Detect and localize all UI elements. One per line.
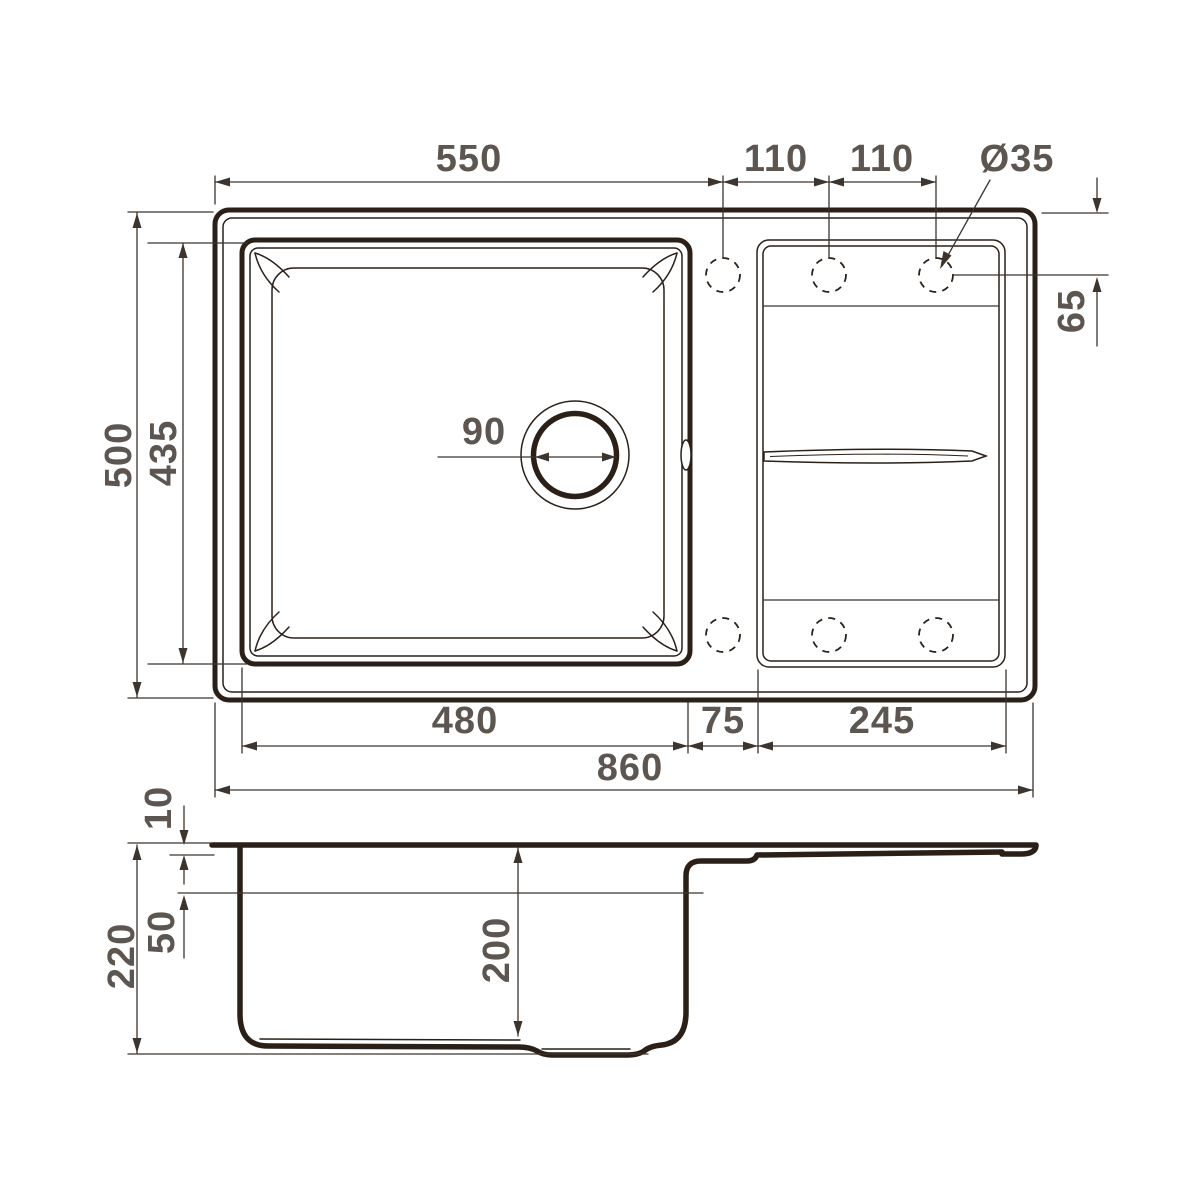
dim-label-hole-pitch-left: 110	[744, 138, 808, 180]
dim-label-rim-height: 10	[138, 786, 180, 830]
dim-label-bowl-depth: 200	[476, 917, 518, 983]
dim-label-upper-depth: 50	[141, 910, 183, 954]
arrowhead	[991, 742, 1006, 751]
dim-label-hole-diameter: Ø35	[980, 138, 1055, 180]
arrowhead	[1018, 786, 1033, 795]
drainboard-groove	[764, 449, 986, 463]
dim-label-bowl-inner-width: 480	[432, 700, 498, 742]
dim-label-overall-width: 860	[597, 747, 663, 789]
arrowhead	[133, 845, 142, 860]
dim-label-bowl-span: 550	[436, 138, 502, 180]
arrowhead	[708, 178, 723, 187]
drain-outer-circle	[521, 401, 629, 509]
arrowhead	[133, 213, 142, 228]
bevel-line	[643, 253, 677, 277]
arrowhead	[1093, 277, 1102, 292]
bevel-line	[255, 627, 289, 651]
arrowhead	[180, 895, 189, 910]
top-view	[215, 210, 1035, 700]
bevel-line	[255, 253, 289, 277]
leader-line	[942, 180, 990, 266]
arrowhead	[133, 1038, 142, 1053]
arrowhead	[688, 742, 703, 751]
dim-label-deck-width: 75	[701, 700, 745, 742]
arrowhead	[215, 178, 230, 187]
dim-label-bowl-outer-depth: 435	[143, 420, 185, 486]
dim-label-drain-diameter: 90	[462, 411, 506, 453]
arrowhead	[180, 855, 189, 870]
bowl-floor-outline	[272, 268, 664, 638]
tap-hole	[919, 258, 953, 292]
tap-hole	[919, 618, 953, 652]
bowl-bottom-inner-line	[260, 1039, 520, 1040]
arrowhead	[179, 648, 188, 663]
sink-technical-drawing: 550 110 110 Ø35 65 500 435 90	[0, 0, 1200, 1200]
bevel-line	[643, 627, 677, 651]
arrowhead	[242, 742, 257, 751]
arrowhead	[133, 682, 142, 697]
tap-hole	[812, 618, 846, 652]
overflow-notch	[681, 440, 691, 470]
tap-hole	[812, 258, 846, 292]
arrowhead	[758, 742, 773, 751]
tap-hole	[706, 258, 740, 292]
dim-label-drainboard-width: 245	[849, 700, 915, 742]
dim-label-overall-depth: 500	[98, 422, 140, 488]
arrowhead	[179, 243, 188, 258]
tap-hole	[706, 618, 740, 652]
arrowhead	[829, 178, 844, 187]
arrowhead	[514, 1021, 523, 1036]
arrowhead	[535, 453, 549, 462]
arrowhead	[1093, 198, 1102, 213]
arrowhead	[743, 742, 758, 751]
arrowhead	[514, 848, 523, 863]
bowl-section-profile	[240, 846, 1002, 1055]
arrowhead	[673, 742, 688, 751]
dim-label-hole-pitch-right: 110	[850, 138, 914, 180]
arrowhead	[215, 786, 230, 795]
arrowhead	[814, 178, 829, 187]
side-view	[212, 845, 1036, 1055]
arrowhead	[921, 178, 936, 187]
drawing-canvas: 550 110 110 Ø35 65 500 435 90	[0, 0, 1200, 1200]
dim-label-hole-offset: 65	[1051, 289, 1093, 333]
arrowhead	[723, 178, 738, 187]
dim-label-overall-height: 220	[101, 923, 143, 989]
